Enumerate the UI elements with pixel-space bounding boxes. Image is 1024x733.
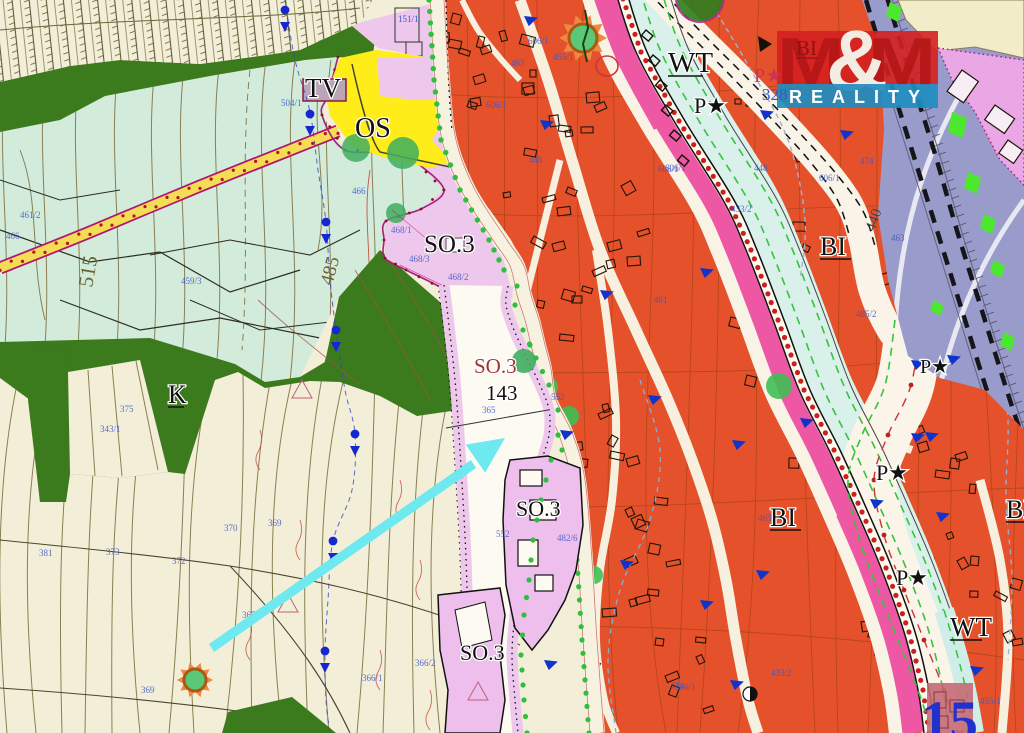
svg-text:15: 15 [921,690,978,733]
svg-text:552: 552 [551,392,565,402]
svg-text:P★: P★ [896,565,928,590]
svg-text:372: 372 [172,556,186,566]
svg-text:151/1: 151/1 [398,14,419,24]
svg-text:BI: BI [770,503,796,532]
svg-text:REALITY: REALITY [789,87,929,107]
svg-text:K: K [168,380,187,409]
svg-text:459/3: 459/3 [181,276,202,286]
svg-text:SO.3: SO.3 [424,231,475,258]
svg-text:482/6: 482/6 [557,533,578,543]
svg-text:WT: WT [950,612,992,642]
svg-text:TV: TV [305,73,341,103]
svg-text:468/3: 468/3 [409,254,430,264]
svg-text:369: 369 [141,685,155,695]
svg-text:365: 365 [482,405,496,415]
svg-text:468/2: 468/2 [448,272,469,282]
svg-text:WT: WT [668,47,713,79]
svg-text:P★: P★ [694,93,726,118]
svg-text:381: 381 [39,548,53,558]
svg-text:455/1: 455/1 [553,52,574,62]
svg-text:373: 373 [106,547,120,557]
svg-text:328: 328 [762,85,788,104]
svg-text:P★: P★ [754,65,783,87]
svg-text:474: 474 [860,156,874,166]
svg-text:BI: BI [796,36,817,60]
svg-text:SO.3: SO.3 [474,354,517,378]
svg-text:143: 143 [486,381,518,405]
svg-text:369: 369 [268,518,282,528]
svg-text:466: 466 [6,231,20,241]
svg-text:370: 370 [224,523,238,533]
svg-text:448: 448 [529,155,543,165]
svg-text:463: 463 [891,233,905,243]
svg-text:P★: P★ [876,460,908,485]
svg-text:468/1: 468/1 [391,225,412,235]
svg-text:433/2: 433/2 [731,204,752,214]
svg-text:481: 481 [654,295,668,305]
svg-text:455/1: 455/1 [980,696,1001,706]
svg-text:P★: P★ [920,356,949,378]
svg-text:SO.3: SO.3 [460,640,505,665]
svg-text:461/2: 461/2 [20,210,41,220]
svg-text:366/2: 366/2 [415,658,436,668]
svg-text:433/2: 433/2 [771,668,792,678]
svg-text:SO.3: SO.3 [516,496,561,521]
svg-text:466: 466 [352,186,366,196]
svg-text:463: 463 [511,58,525,68]
svg-text:366/1: 366/1 [362,673,383,683]
svg-text:485/2: 485/2 [856,309,877,319]
svg-text:606/1: 606/1 [675,682,696,692]
svg-text:448: 448 [754,163,768,173]
svg-text:606/1: 606/1 [665,163,686,173]
svg-text:343/1: 343/1 [100,424,121,434]
svg-text:504/1: 504/1 [281,98,302,108]
svg-text:552: 552 [496,529,510,539]
svg-text:BI: BI [820,232,846,261]
svg-text:375: 375 [120,404,134,414]
svg-text:606/1: 606/1 [486,100,507,110]
svg-text:606/1: 606/1 [528,36,549,46]
svg-text:BI: BI [1006,495,1024,524]
svg-text:606/1: 606/1 [819,173,840,183]
svg-text:OS: OS [355,113,391,144]
svg-text:463: 463 [758,513,772,523]
